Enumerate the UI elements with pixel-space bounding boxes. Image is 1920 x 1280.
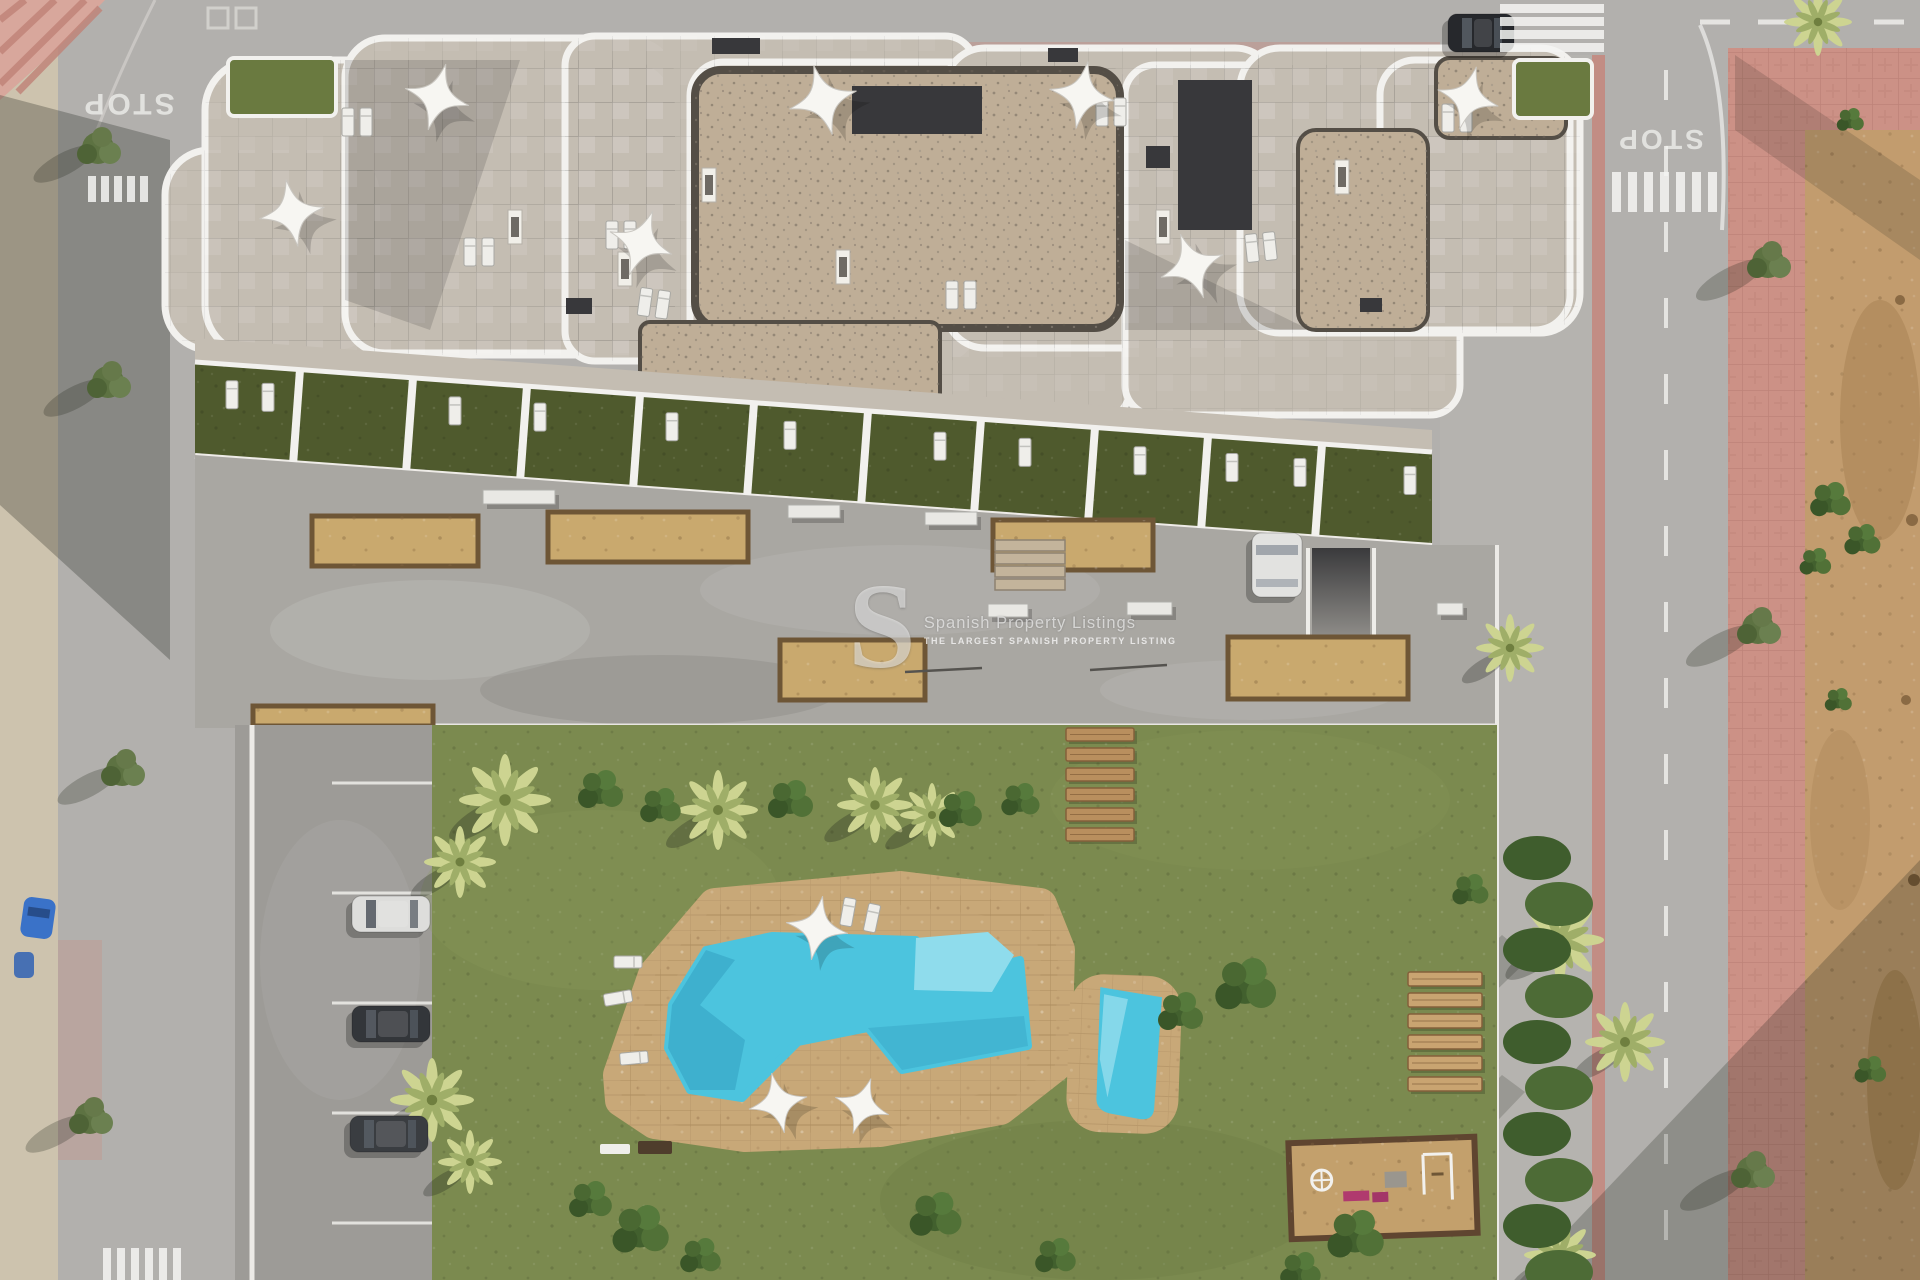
terrace-lounger xyxy=(1294,458,1306,486)
terrace-lounger xyxy=(934,432,946,460)
hedge xyxy=(1525,1066,1593,1110)
dark-roof xyxy=(1178,80,1252,230)
scene-svg: STOP STOP xyxy=(0,0,1920,1280)
terrace-lounger xyxy=(534,403,546,431)
terrace-lounger xyxy=(1134,447,1146,475)
dark-roof xyxy=(1146,146,1170,168)
crosswalk-band xyxy=(1500,4,1604,13)
stone-step xyxy=(995,553,1065,564)
stop-marking-right: STOP xyxy=(1616,124,1704,155)
roof-garden xyxy=(1514,60,1592,118)
dark-roof xyxy=(566,298,592,314)
hedge xyxy=(1503,1020,1571,1064)
palm-tree xyxy=(459,754,551,846)
pool-lounger xyxy=(620,1051,649,1065)
parked-car-blue xyxy=(19,896,56,940)
dark-roof xyxy=(1048,48,1078,62)
terrace-lounger xyxy=(449,397,461,425)
hedge xyxy=(1503,928,1571,972)
right-pink-stripe xyxy=(1592,55,1605,1280)
stone-step xyxy=(995,540,1065,551)
terrace-lounger xyxy=(666,413,678,441)
playground xyxy=(1288,1137,1477,1239)
terrace-lounger xyxy=(1019,438,1031,466)
crosswalk-band xyxy=(1500,43,1604,52)
parked-car-dark-1 xyxy=(346,1006,430,1048)
stop-marking-left: STOP xyxy=(81,87,174,120)
bench xyxy=(483,490,555,504)
parked-car-white xyxy=(346,896,430,938)
stone-step xyxy=(995,566,1065,577)
hedge xyxy=(1503,1204,1571,1248)
stone-step xyxy=(995,579,1065,590)
roof-garden xyxy=(228,58,336,116)
driveway-car-white xyxy=(1246,533,1302,603)
dark-roof xyxy=(712,38,760,54)
small-pool xyxy=(1065,973,1182,1135)
aerial-render: STOP STOP xyxy=(0,0,1920,1280)
hedge xyxy=(1503,836,1571,880)
hedge xyxy=(1525,974,1593,1018)
palm-tree xyxy=(1476,614,1544,682)
garage-ramp xyxy=(1312,548,1370,636)
blue-object xyxy=(14,952,34,978)
terrace-lounger xyxy=(1404,466,1416,494)
pool-lounger xyxy=(614,956,642,968)
crosswalk-band xyxy=(1500,17,1604,26)
dark-roof xyxy=(852,86,982,134)
hedge xyxy=(1525,1158,1593,1202)
palm-tree xyxy=(424,826,496,898)
dark-roof xyxy=(1360,298,1382,312)
bench xyxy=(925,512,977,525)
parked-car-dark-2 xyxy=(344,1116,428,1158)
bench xyxy=(1127,602,1172,615)
hedge xyxy=(1525,882,1593,926)
bench xyxy=(788,505,840,518)
bench xyxy=(988,604,1028,617)
palm-tree xyxy=(1585,1002,1665,1082)
playground-toy xyxy=(1372,1192,1388,1203)
bench xyxy=(1437,603,1463,615)
terrace-lounger xyxy=(784,421,796,449)
playground-box xyxy=(1384,1171,1407,1188)
terrace-lounger xyxy=(226,381,238,409)
crosswalk-band xyxy=(1500,30,1604,39)
terrace-lounger xyxy=(1226,453,1238,481)
hedge xyxy=(1503,1112,1571,1156)
terrace-lounger xyxy=(262,383,274,411)
playground-toy xyxy=(1343,1190,1369,1201)
parking-strip xyxy=(235,725,432,1280)
palm-tree xyxy=(678,770,758,850)
palm-tree xyxy=(438,1130,502,1194)
